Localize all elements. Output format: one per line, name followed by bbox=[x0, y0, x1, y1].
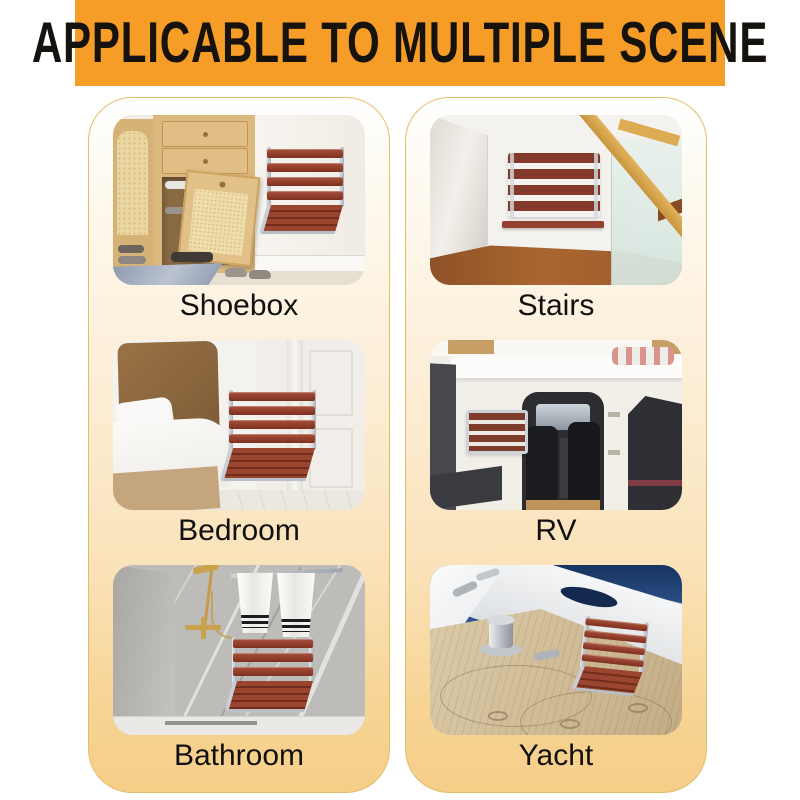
seat-backrest bbox=[581, 618, 647, 667]
scene-cell-rv: RV bbox=[430, 340, 682, 547]
scene-label-bathroom: Bathroom bbox=[113, 740, 365, 772]
center-console bbox=[560, 438, 568, 498]
scene-cell-shoebox: Shoebox bbox=[113, 115, 365, 322]
cabinet-latch bbox=[608, 450, 620, 455]
folding-seat-unfolded bbox=[229, 392, 315, 481]
folding-seat-folded bbox=[466, 410, 528, 454]
drawer bbox=[162, 121, 248, 147]
shoe bbox=[225, 268, 247, 277]
scene-label-shoebox: Shoebox bbox=[113, 290, 365, 322]
scene-cell-yacht: Yacht bbox=[430, 565, 682, 772]
banner: APPLICABLE TO MULTIPLE SCENE bbox=[75, 0, 725, 86]
shoe bbox=[249, 270, 271, 279]
folding-seat-folded bbox=[508, 153, 600, 217]
scene-cell-bathroom: Bathroom bbox=[113, 565, 365, 772]
shoe-cabinet-side bbox=[113, 119, 153, 269]
shoe bbox=[118, 245, 144, 253]
wood-floor bbox=[526, 500, 600, 510]
deck-hatch bbox=[560, 719, 580, 729]
seat-pan bbox=[259, 205, 343, 234]
deck-hatch bbox=[628, 703, 648, 713]
bedroom-photo bbox=[113, 340, 365, 510]
cab-seat bbox=[568, 422, 600, 510]
marble-wall-left bbox=[113, 565, 175, 735]
knob bbox=[219, 181, 226, 188]
sofa-back bbox=[628, 396, 682, 510]
towel bbox=[237, 573, 273, 633]
towel bbox=[277, 573, 315, 637]
cleat bbox=[451, 580, 478, 598]
cabinet-latch bbox=[608, 412, 620, 417]
shower-valve bbox=[201, 617, 206, 639]
overhead-cabinet bbox=[448, 340, 494, 354]
folding-seat-unfolded bbox=[233, 639, 313, 712]
seat-pan bbox=[224, 681, 313, 712]
seat-folded-edge bbox=[502, 221, 604, 228]
cab-doorway bbox=[522, 392, 604, 510]
winch bbox=[489, 621, 513, 648]
sofa-trim bbox=[628, 480, 682, 486]
scene-card-right: Stairs bbox=[405, 97, 707, 793]
rattan-panel bbox=[188, 189, 248, 256]
scene-cell-stairs: Stairs bbox=[430, 115, 682, 322]
bags bbox=[612, 347, 674, 365]
folding-seat-unfolded bbox=[267, 149, 343, 234]
seat-backrest bbox=[233, 639, 313, 676]
seat-backrest bbox=[229, 392, 315, 443]
deck-hatch bbox=[488, 711, 508, 721]
scene-label-rv: RV bbox=[430, 515, 682, 547]
wall-corner bbox=[487, 135, 488, 245]
seat-pan bbox=[220, 448, 315, 481]
seat-backrest bbox=[267, 149, 343, 200]
scene-label-yacht: Yacht bbox=[430, 740, 682, 772]
shoe bbox=[171, 252, 213, 262]
banner-title: APPLICABLE TO MULTIPLE SCENE bbox=[32, 10, 768, 76]
cab-seat bbox=[526, 426, 558, 510]
scene-label-stairs: Stairs bbox=[430, 290, 682, 322]
product-infographic: APPLICABLE TO MULTIPLE SCENE bbox=[0, 0, 800, 800]
shoebox-photo bbox=[113, 115, 365, 285]
baseboard bbox=[245, 255, 365, 271]
scene-card-left: Shoebox bbox=[88, 97, 390, 793]
shower-tray bbox=[113, 716, 365, 735]
winch-top bbox=[487, 615, 515, 625]
rv-photo bbox=[430, 340, 682, 510]
shoe bbox=[118, 256, 146, 264]
bathroom-photo bbox=[113, 565, 365, 735]
rug bbox=[113, 263, 223, 285]
scene-columns: Shoebox bbox=[88, 97, 707, 793]
stairs-photo bbox=[430, 115, 682, 285]
scene-label-bedroom: Bedroom bbox=[113, 515, 365, 547]
yacht-photo bbox=[430, 565, 682, 735]
shoe-cabinet-main bbox=[153, 115, 255, 273]
rattan-panel bbox=[117, 131, 148, 235]
floor-drain bbox=[165, 721, 257, 725]
bed-base bbox=[113, 466, 220, 510]
scene-cell-bedroom: Bedroom bbox=[113, 340, 365, 547]
drawer bbox=[162, 148, 248, 174]
folding-seat-unfolded bbox=[578, 618, 647, 697]
